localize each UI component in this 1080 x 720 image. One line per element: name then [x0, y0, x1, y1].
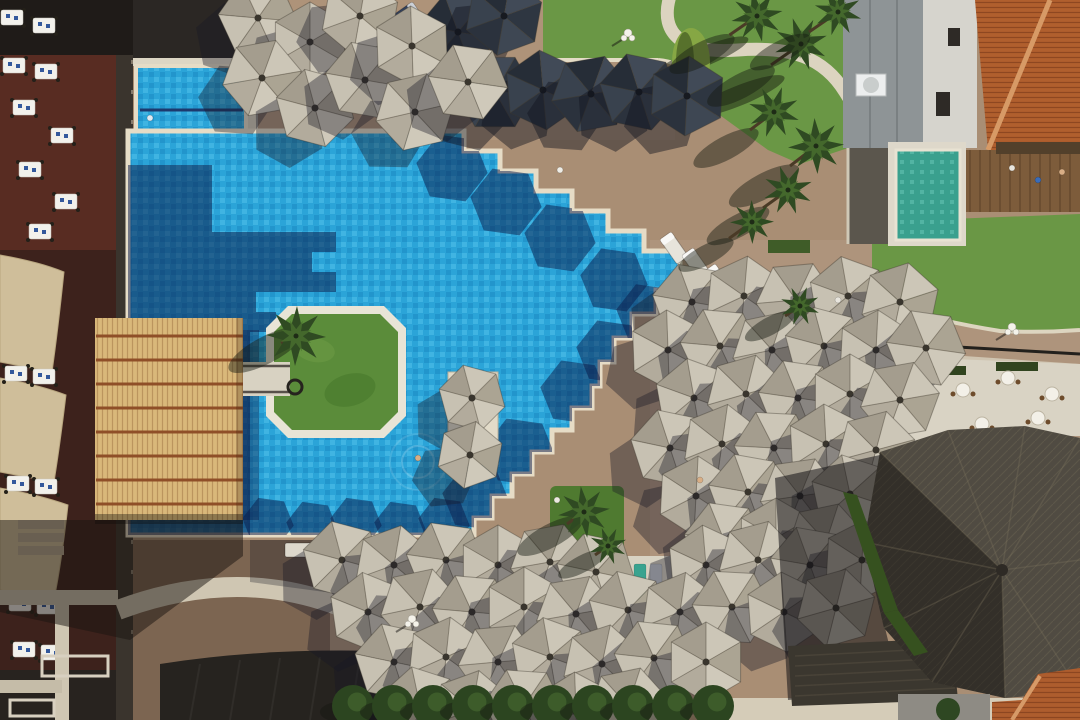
dining-table — [2, 364, 30, 384]
straw-pergola-texture — [95, 318, 243, 520]
dining-table — [30, 16, 58, 36]
dining-table — [48, 126, 76, 146]
window — [948, 28, 960, 46]
person — [835, 297, 841, 303]
dining-table — [26, 222, 54, 242]
dining-table — [0, 8, 26, 28]
shade-sail — [0, 378, 66, 482]
ac-fan — [863, 77, 879, 93]
person — [415, 455, 421, 461]
dining-table — [30, 367, 58, 387]
screenshot-root — [0, 0, 1080, 720]
dining-table — [32, 62, 60, 82]
thatch-apex — [996, 564, 1008, 576]
person — [1035, 177, 1041, 183]
terracotta-roof-tiles — [975, 0, 1080, 150]
shade-sail — [0, 255, 64, 372]
restaurant-terrace-floor — [0, 55, 116, 255]
plunge-pool — [896, 150, 960, 240]
dining-table — [10, 98, 38, 118]
dining-table — [52, 192, 80, 212]
dining-table — [4, 474, 32, 494]
white-path-band — [0, 680, 62, 693]
left-building-top — [0, 0, 133, 55]
dining-table — [16, 160, 44, 180]
hedge-planter — [768, 240, 810, 253]
person — [147, 115, 153, 121]
person — [1009, 165, 1015, 171]
white-wall — [923, 0, 977, 148]
resort-aerial-photo — [0, 0, 1080, 720]
person — [1059, 169, 1065, 175]
window — [936, 92, 950, 116]
deck-pergola-frame — [996, 142, 1080, 154]
person — [557, 167, 563, 173]
terrace-planter — [996, 362, 1038, 371]
person — [554, 497, 560, 503]
person — [697, 477, 703, 483]
pergola-edge-shade — [236, 318, 243, 520]
dining-table — [10, 640, 38, 660]
dining-table — [0, 56, 28, 76]
dining-table — [32, 477, 60, 497]
